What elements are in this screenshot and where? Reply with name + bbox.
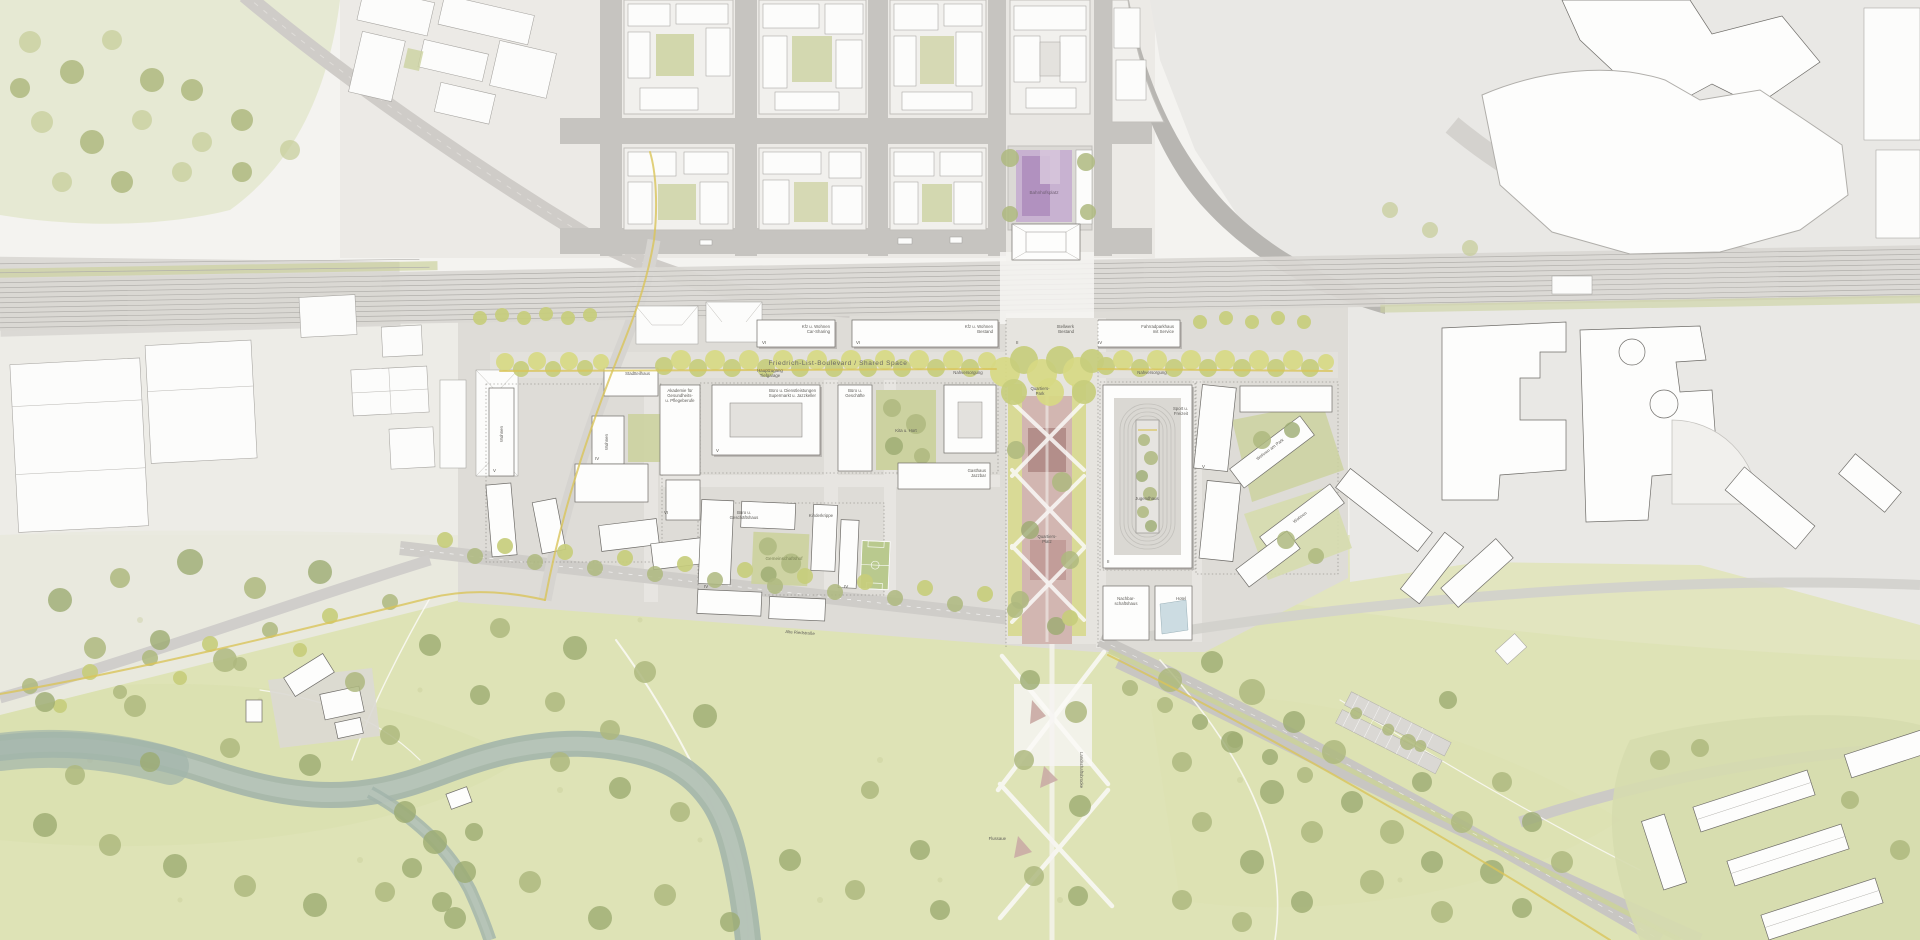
stadtteilhaus-label: Stadtteilhaus: [625, 371, 650, 376]
boulevard-label: Friedrich-List-Boulevard / Shared Space: [768, 360, 907, 367]
storage-tank: [1650, 390, 1678, 418]
station-building: [1012, 224, 1080, 260]
bus-shelter: [700, 240, 712, 245]
buero-geschaeftshaus-label-2: Geschäftshaus: [730, 515, 759, 520]
nahversorgung-label: Nahversorgung: [953, 370, 983, 375]
site-plan-svg: Friedrich-List-Boulevard / Shared Space …: [0, 0, 1920, 940]
jugendhaus-label: Jugendhaus: [1135, 496, 1158, 501]
wohnen-label-1: Wohnen: [499, 425, 504, 442]
kita-label: Kita u. Hort: [895, 428, 917, 433]
bus-shelter: [898, 238, 912, 244]
city-block: [890, 0, 986, 114]
storey-numeral: IV: [844, 584, 848, 589]
row3-label-2: Bestand: [1058, 329, 1074, 334]
hotel-label: Hotel: [1176, 596, 1186, 601]
flussaue-label: Flussaue: [989, 836, 1007, 841]
bottom-right-housing: [1612, 715, 1920, 940]
storey-numeral: II: [1107, 559, 1109, 564]
quartierspark-label-2: Park: [1036, 391, 1046, 396]
row4-label-2: mit Service: [1153, 329, 1175, 334]
city-block: [759, 148, 866, 230]
gemeinschaftshof-label: Gemeinschaftshof: [765, 556, 803, 561]
quartiersplatz-label-2: Platz: [1042, 539, 1052, 544]
edge-building: [1876, 150, 1920, 238]
city-block: [624, 148, 733, 230]
row1-label-2: Car-Sharing: [807, 329, 831, 334]
akademie-building: [660, 385, 700, 520]
sport-label-2: Freizeit: [1174, 411, 1189, 416]
storey-numeral: V: [493, 468, 496, 473]
city-block: [1010, 0, 1090, 114]
wohnen-label-2: Wohnen: [604, 433, 609, 450]
landschaftsbruecke-label: Landschaftsbrücke: [1079, 752, 1084, 789]
storey-numeral: VI: [762, 340, 766, 345]
row2-label-2: Bestand: [977, 329, 993, 334]
city-block: [759, 0, 866, 114]
buero-dienst-label-2: Supermarkt u. Jazzkeller: [769, 393, 817, 398]
storey-numeral: IV: [704, 584, 708, 589]
station-underpass-band: [1000, 252, 1094, 324]
masterplan-canvas: Friedrich-List-Boulevard / Shared Space …: [0, 0, 1920, 940]
storey-numeral: VI: [664, 510, 668, 515]
water-basin: [1160, 600, 1188, 634]
storey-numeral: II: [1016, 340, 1018, 345]
storey-numeral: IV: [1098, 340, 1102, 345]
city-block: [890, 148, 986, 230]
nahversorgung-label-2: Nahversorgung: [1137, 370, 1167, 375]
storey-numeral: IV: [595, 456, 599, 461]
storey-numeral: V: [716, 448, 719, 453]
akademie-label-3: u. Pflegeberufe: [665, 398, 695, 403]
kinderkrippe-label: Kinderkrippe: [809, 513, 834, 518]
access-label-2: Tiefgarage: [760, 373, 781, 378]
edge-building: [1864, 8, 1920, 140]
gasthaus-label-2: Jazzbar: [971, 473, 987, 478]
buero-geschaefte-label-2: Geschäfte: [845, 393, 865, 398]
storage-tank: [1619, 339, 1645, 365]
city-block: [624, 0, 733, 114]
station-square-block: [1001, 146, 1096, 230]
storey-numeral: VI: [856, 340, 860, 345]
station-square-label: Bahnhofsplatz: [1029, 190, 1059, 195]
storey-numeral: V: [1202, 464, 1205, 469]
vehicle: [950, 237, 962, 243]
nachbarschaftshaus-label-2: schaftshaus: [1115, 601, 1138, 606]
